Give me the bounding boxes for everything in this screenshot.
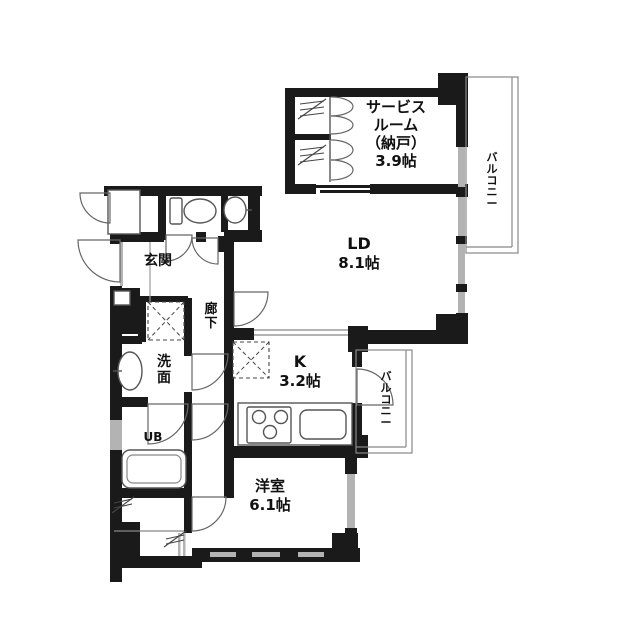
kitchen-label: K (294, 352, 307, 371)
toilet-fixture (170, 198, 216, 224)
ld-door-arc (234, 292, 268, 326)
meter-box-door-arc (80, 193, 110, 223)
washer-space-box (148, 302, 184, 340)
service-room-label-2: ルーム (374, 116, 419, 134)
western-room-size: 6.1帖 (249, 496, 291, 514)
washbasin-small-fixture (224, 197, 252, 223)
kitchen-size: 3.2帖 (279, 372, 321, 390)
ld-size: 8.1帖 (338, 254, 380, 272)
unit-bath-label: UB (144, 430, 163, 444)
balcony-lower-label: バルコニー (381, 370, 392, 429)
floor-plan-image: サービス ルーム （納戸） 3.9帖 LD 8.1帖 K 3.2帖 洋室 6.1… (0, 0, 640, 640)
stove-fixture (247, 407, 291, 443)
western-room-label: 洋室 (255, 477, 285, 495)
bathtub-fixture (122, 450, 186, 488)
balcony-right-label: バルコニー (487, 151, 498, 210)
entrance-label: 玄関 (144, 252, 172, 269)
service-room-label-1: サービス (366, 98, 426, 116)
entrance-door-arc (78, 240, 120, 282)
washroom-label: 洗面 (157, 353, 171, 386)
shelf-symbol (298, 99, 326, 119)
shelf-symbol (298, 145, 326, 165)
washroom-door-arc (192, 354, 228, 390)
corridor-label: 廊下 (204, 301, 217, 331)
bifold-closet-doors (331, 97, 353, 180)
corridor-door-arc (192, 404, 228, 440)
kitchen-counter (238, 403, 352, 445)
ld-label: LD (347, 234, 370, 253)
service-room-size: 3.9帖 (375, 152, 417, 170)
bedroom-door-arc (192, 497, 226, 531)
kitchen-sink-fixture (300, 410, 346, 439)
floor-plan-svg: サービス ルーム （納戸） 3.9帖 LD 8.1帖 K 3.2帖 洋室 6.1… (0, 0, 640, 640)
fridge-space-box (233, 342, 269, 378)
service-room-label-3: （納戸） (366, 134, 426, 152)
